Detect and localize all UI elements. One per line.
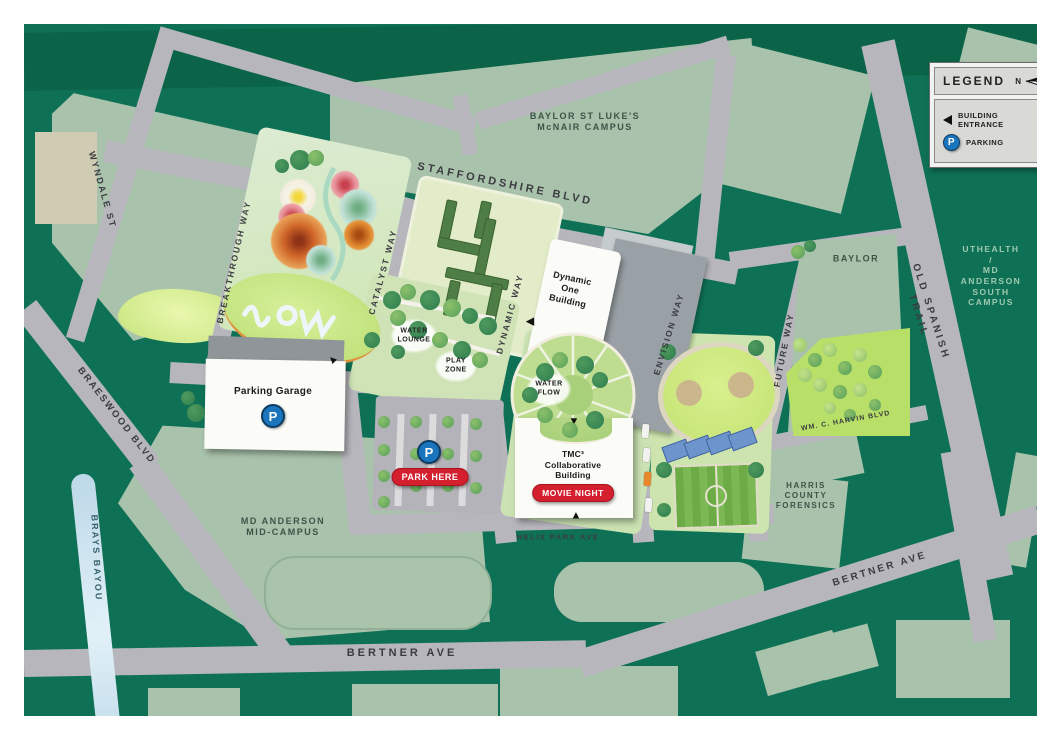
- street-label-helix-park: HELIX PARK AVE: [517, 532, 600, 541]
- tan-block: [35, 132, 97, 224]
- water-lounge-label: WATER LOUNGE: [398, 327, 431, 345]
- tree: [410, 416, 422, 428]
- tree: [798, 368, 812, 382]
- tree: [442, 448, 454, 460]
- building-entrance-icon: [943, 115, 952, 125]
- tree: [552, 352, 568, 368]
- tree: [470, 450, 482, 462]
- east-oval-grove-1: [676, 380, 702, 406]
- tree: [793, 338, 807, 352]
- area-label-baylor: BAYLOR: [833, 253, 879, 264]
- map-canvas: ▲ ◀ ▼ ▲ STAFFORDSHIRE BLVD WYN: [24, 24, 1037, 716]
- tree: [378, 416, 390, 428]
- tree: [813, 378, 827, 392]
- tree: [378, 496, 390, 508]
- tree: [400, 284, 416, 300]
- tree: [562, 422, 578, 438]
- leaf-building: [264, 556, 492, 630]
- car-3: [644, 472, 652, 486]
- tree: [442, 416, 454, 428]
- car-4: [645, 498, 653, 512]
- legend-entry-entrance: BUILDING ENTRANCE: [943, 111, 1037, 129]
- tree: [181, 391, 195, 405]
- tree: [586, 411, 604, 429]
- park-here-p-icon: P: [417, 440, 441, 464]
- tree: [187, 404, 205, 422]
- tree: [470, 418, 482, 430]
- tmc3-label: TMC³ Collaborative Building: [545, 449, 601, 481]
- legend-entry-entrance-label: BUILDING ENTRANCE: [958, 111, 1037, 129]
- tree: [462, 308, 478, 324]
- parking-garage-label: Parking Garage: [234, 386, 312, 399]
- legend-entry-parking-label: PARKING: [966, 138, 1004, 147]
- tree: [275, 159, 289, 173]
- parking-garage-p-icon: P: [261, 404, 285, 428]
- campus-block-s2: [352, 684, 498, 716]
- tree: [868, 365, 882, 379]
- tree: [592, 372, 608, 388]
- play-zone-label: PLAY ZONE: [445, 357, 466, 375]
- tree: [791, 245, 805, 259]
- tree: [378, 470, 390, 482]
- area-label-baylor-st-lukes: BAYLOR ST LUKE'S McNAIR CAMPUS: [530, 111, 640, 134]
- tree: [443, 299, 461, 317]
- legend-parking-icon: P: [943, 134, 960, 151]
- car-1: [642, 424, 650, 438]
- tree: [432, 332, 448, 348]
- tree: [537, 407, 553, 423]
- tree: [748, 340, 764, 356]
- water-flow-label: WATER FLOW: [535, 380, 562, 398]
- tree: [391, 345, 405, 359]
- legend-title-panel: LEGEND N: [934, 67, 1037, 95]
- movie-night-badge: MOVIE NIGHT: [532, 484, 614, 502]
- tree: [364, 332, 380, 348]
- tree: [824, 402, 836, 414]
- soccer-field: [673, 463, 759, 530]
- tree: [804, 240, 816, 252]
- legend-north-label: N: [1015, 77, 1023, 86]
- tree: [470, 482, 482, 494]
- street-label-bertner-west: BERTNER AVE: [347, 647, 458, 661]
- tree: [838, 361, 852, 375]
- tree: [420, 290, 440, 310]
- tree: [657, 503, 671, 517]
- legend-title: LEGEND: [943, 74, 1005, 88]
- tree: [808, 353, 822, 367]
- area-label-harris-forensics: HARRIS COUNTY FORENSICS: [776, 481, 836, 511]
- event-map-page: ▲ ◀ ▼ ▲ STAFFORDSHIRE BLVD WYN: [0, 0, 1061, 740]
- street-label-braeswood: BRAESWOOD BLVD: [74, 365, 157, 467]
- campus-block-s4: [755, 630, 845, 696]
- tree: [853, 383, 867, 397]
- tree: [378, 444, 390, 456]
- tree: [383, 291, 401, 309]
- tree: [869, 399, 881, 411]
- park-here-badge: PARK HERE: [392, 468, 469, 486]
- tree: [536, 363, 554, 381]
- tree: [290, 150, 310, 170]
- tree: [479, 317, 497, 335]
- tree: [472, 352, 488, 368]
- tree: [308, 150, 324, 166]
- tree: [576, 356, 594, 374]
- tree: [833, 385, 847, 399]
- campus-block-s3: [148, 688, 240, 716]
- tree: [853, 348, 867, 362]
- tree: [390, 310, 406, 326]
- dynamic-one-entrance-icon: ◀: [526, 317, 534, 328]
- legend-entries-panel: BUILDING ENTRANCE P PARKING: [934, 99, 1037, 163]
- east-oval-grove-2: [728, 372, 754, 398]
- tree: [823, 343, 837, 357]
- legend-entry-parking: P PARKING: [943, 134, 1037, 151]
- area-label-md-anderson: MD ANDERSON MID-CAMPUS: [241, 516, 325, 539]
- tmc3-entrance-bottom-icon: ▲: [571, 511, 582, 522]
- tree: [656, 462, 672, 478]
- garden-path: [304, 164, 354, 284]
- tree: [748, 462, 764, 478]
- area-label-uthealth: UTHEALTH / MD ANDERSON SOUTH CAMPUS: [961, 244, 1022, 308]
- car-2: [643, 448, 651, 462]
- compass-icon: [1025, 75, 1037, 87]
- legend: LEGEND N BUILDING ENTRANCE P PARKING: [929, 62, 1037, 168]
